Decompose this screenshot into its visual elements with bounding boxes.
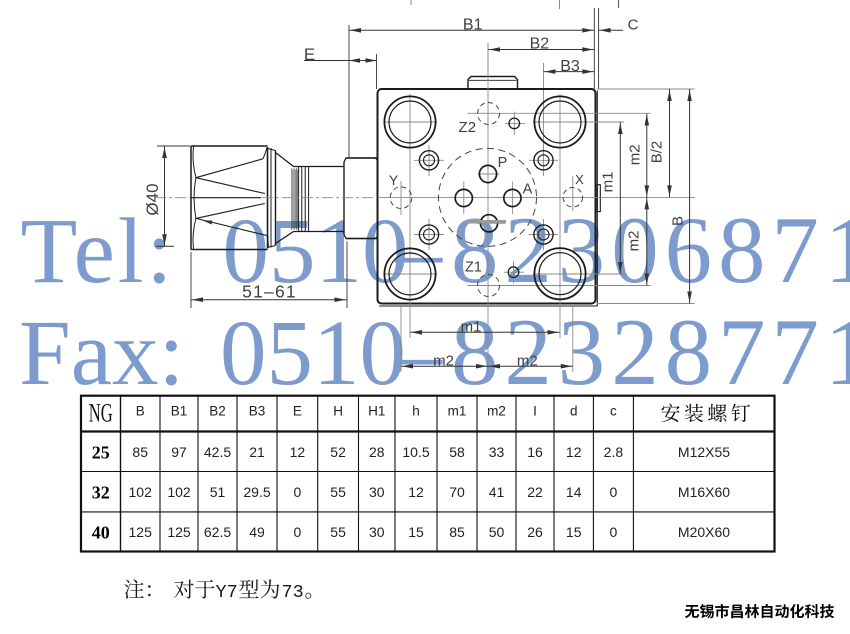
svg-text:26: 26 <box>527 524 543 540</box>
svg-text:55: 55 <box>330 484 346 500</box>
svg-text:h: h <box>412 404 420 419</box>
svg-text:E: E <box>293 404 302 419</box>
svg-text:12: 12 <box>408 484 424 500</box>
svg-text:H1: H1 <box>368 404 385 419</box>
svg-text:12: 12 <box>290 444 306 460</box>
svg-text:15: 15 <box>408 524 424 540</box>
svg-text:25: 25 <box>92 443 110 463</box>
svg-text:22: 22 <box>527 484 543 500</box>
svg-text:125: 125 <box>129 524 153 540</box>
svg-text:m2: m2 <box>433 353 454 370</box>
svg-text:B: B <box>670 216 687 226</box>
svg-text:42.5: 42.5 <box>204 444 231 460</box>
svg-text:62.5: 62.5 <box>204 524 231 540</box>
svg-text:14: 14 <box>566 484 582 500</box>
svg-text:40: 40 <box>92 523 110 543</box>
svg-text:0: 0 <box>294 484 302 500</box>
svg-text:Z2: Z2 <box>459 119 477 136</box>
svg-text:NG: NG <box>89 399 113 428</box>
svg-text:m1: m1 <box>448 404 467 419</box>
svg-text:m2: m2 <box>626 231 643 252</box>
svg-text:30: 30 <box>369 484 385 500</box>
svg-text:97: 97 <box>171 444 187 460</box>
svg-text:0: 0 <box>610 484 618 500</box>
svg-text:41: 41 <box>489 484 505 500</box>
svg-text:51–61: 51–61 <box>242 282 297 302</box>
svg-text:m2: m2 <box>627 144 644 165</box>
svg-text:m1: m1 <box>600 172 617 193</box>
svg-text:Y7: Y7 <box>216 582 238 603</box>
svg-text:21: 21 <box>249 444 265 460</box>
svg-text:0: 0 <box>610 524 618 540</box>
svg-text:70: 70 <box>449 484 465 500</box>
svg-text:m1: m1 <box>461 319 482 336</box>
svg-text:32: 32 <box>92 483 110 503</box>
svg-text:P: P <box>498 155 508 171</box>
svg-text:12: 12 <box>566 444 582 460</box>
svg-text:A: A <box>523 182 533 198</box>
svg-text:102: 102 <box>129 484 153 500</box>
svg-text:M16X60: M16X60 <box>678 484 730 500</box>
svg-text:10.5: 10.5 <box>402 444 429 460</box>
svg-text:50: 50 <box>489 524 505 540</box>
svg-text:c: c <box>610 404 617 419</box>
svg-text:B3: B3 <box>249 404 266 419</box>
svg-text:Y: Y <box>389 172 399 188</box>
svg-text:B3: B3 <box>560 58 580 75</box>
svg-text:85: 85 <box>132 444 148 460</box>
svg-text:52: 52 <box>330 444 346 460</box>
svg-text:Z1: Z1 <box>465 260 482 276</box>
svg-text:B2: B2 <box>209 404 226 419</box>
svg-text:M20X60: M20X60 <box>678 524 730 540</box>
svg-text:73: 73 <box>282 582 304 603</box>
svg-text:51: 51 <box>210 484 226 500</box>
svg-text:I: I <box>533 404 537 419</box>
svg-text:d: d <box>570 404 578 419</box>
svg-text:C: C <box>628 17 639 34</box>
svg-text:2.8: 2.8 <box>604 444 624 460</box>
svg-text:85: 85 <box>449 524 465 540</box>
svg-text:30: 30 <box>369 524 385 540</box>
svg-text:49: 49 <box>249 524 265 540</box>
svg-text:B/2: B/2 <box>649 141 666 164</box>
svg-text:B1: B1 <box>171 404 188 419</box>
svg-text:16: 16 <box>527 444 543 460</box>
svg-text:33: 33 <box>489 444 505 460</box>
svg-text:125: 125 <box>167 524 191 540</box>
svg-text:M12X55: M12X55 <box>678 444 730 460</box>
svg-text:B2: B2 <box>530 36 550 53</box>
svg-text:55: 55 <box>330 524 346 540</box>
svg-text:H: H <box>333 404 343 419</box>
svg-text:Ø40: Ø40 <box>143 183 162 215</box>
svg-text:102: 102 <box>167 484 191 500</box>
svg-text:58: 58 <box>449 444 465 460</box>
svg-text:E: E <box>304 45 315 64</box>
svg-text:0: 0 <box>294 524 302 540</box>
svg-text:B1: B1 <box>463 17 483 34</box>
svg-text:28: 28 <box>369 444 385 460</box>
svg-text:B: B <box>136 404 145 419</box>
svg-text:m2: m2 <box>487 404 506 419</box>
svg-text:15: 15 <box>566 524 582 540</box>
svg-text:m2: m2 <box>517 353 538 370</box>
svg-text:X: X <box>575 172 584 187</box>
svg-text:29.5: 29.5 <box>243 484 270 500</box>
